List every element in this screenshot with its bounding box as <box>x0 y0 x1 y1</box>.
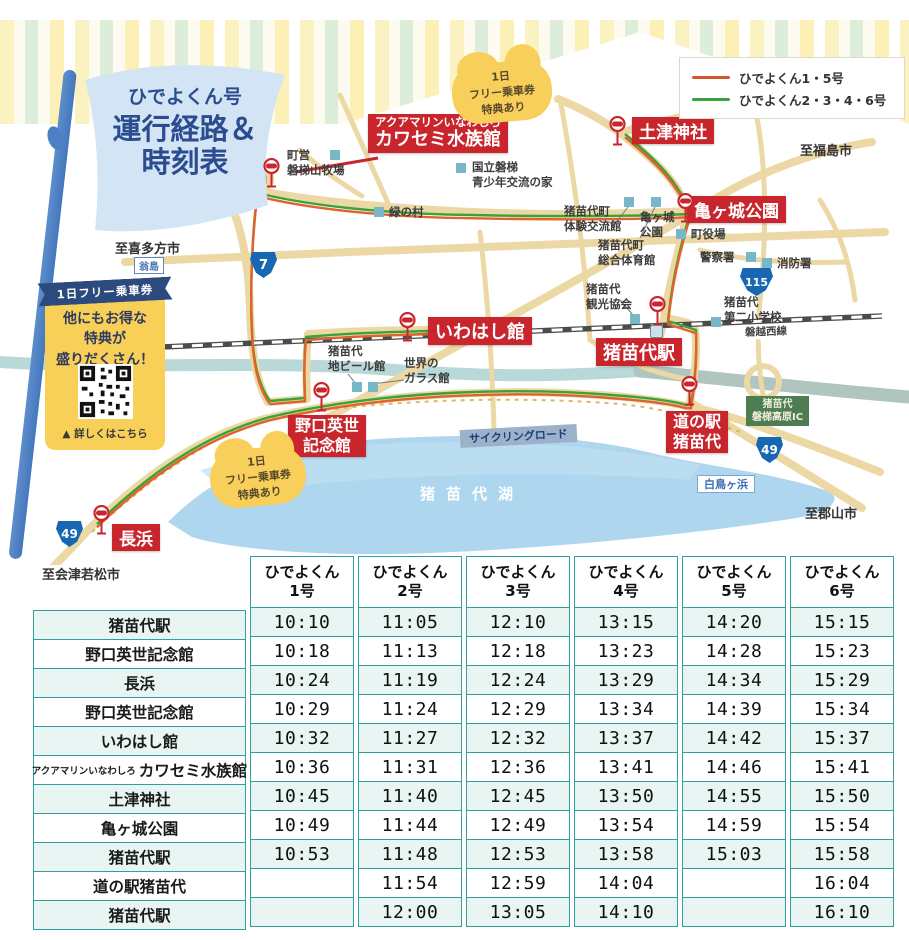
timetable-time-cell: 12:36 <box>467 752 569 781</box>
timetable-time-cell: 11:27 <box>359 723 461 752</box>
timetable-column-header: ひでよくん4号 <box>575 557 677 608</box>
direction-fukushima: 至福島市 <box>800 140 852 159</box>
timetable-column-header: ひでよくん5号 <box>683 557 785 608</box>
place-taiken-line2: 体験交流館 <box>564 219 622 234</box>
timetable-time-cell: 12:18 <box>467 636 569 665</box>
place-shogakko: 猪苗代 第二小学校 <box>724 295 782 324</box>
timetable-time-cell: 14:39 <box>683 694 785 723</box>
bus-stop-icon-hanitsu <box>608 116 627 147</box>
timetable-time-cell <box>251 897 353 926</box>
stop-label-michinoeki: 道の駅 猪苗代 <box>666 411 728 453</box>
timetable-time-cell: 11:54 <box>359 868 461 897</box>
facility-square-shobo <box>762 258 772 268</box>
timetable-time-cell: 10:10 <box>251 608 353 636</box>
place-shobo: 消防署 <box>777 256 812 271</box>
timetable-time-cell: 12:10 <box>467 608 569 636</box>
bus-stop-icon-noguchi <box>312 382 331 413</box>
timetable-time-cell: 13:34 <box>575 694 677 723</box>
title-line-1: ひでよくん号 <box>96 82 274 109</box>
qr-code <box>78 364 133 419</box>
timetable-time-cell: 11:44 <box>359 810 461 839</box>
timetable-time-cell: 10:29 <box>251 694 353 723</box>
timetable-time-cell: 11:48 <box>359 839 461 868</box>
facility-square-yakuba <box>676 229 686 239</box>
timetable-stop-name: 土津神社 <box>34 784 245 813</box>
legend-label-1-5: ひでよくん1・5号 <box>739 68 844 87</box>
legend-item-1-5: ひでよくん1・5号 <box>692 66 892 88</box>
timetable-time-cell: 14:20 <box>683 608 785 636</box>
timetable-time-cell: 10:24 <box>251 665 353 694</box>
stop-label-hanitsu-shrine: 土津神社 <box>632 117 714 144</box>
okinashima-station-label: 翁島 <box>134 257 164 274</box>
place-kokuritsu-line2: 青少年交流の家 <box>472 175 553 190</box>
facility-square-kokuritsu <box>456 163 466 173</box>
timetable-time-cell: 15:37 <box>791 723 893 752</box>
timetable-column-2: ひでよくん2号11:0511:1311:1911:2411:2711:3111:… <box>358 556 462 927</box>
stop-label-inawashiro-station: 猪苗代駅 <box>596 338 682 366</box>
timetable-time-cell: 15:54 <box>791 810 893 839</box>
timetable-stop-name: 猪苗代駅 <box>34 842 245 871</box>
timetable-time-cell: 13:41 <box>575 752 677 781</box>
timetable-stop-name: 亀ヶ城公園 <box>34 813 245 842</box>
timetable-time-cell: 13:05 <box>467 897 569 926</box>
timetable-time-cell: 13:15 <box>575 608 677 636</box>
timetable-time-cell: 11:40 <box>359 781 461 810</box>
timetable-column-header: ひでよくん1号 <box>251 557 353 608</box>
cloud-line-3: 特典あり <box>237 483 282 504</box>
legend-swatch-green <box>692 98 730 101</box>
timetable-time-cell: 15:23 <box>791 636 893 665</box>
timetable-time-cell: 11:24 <box>359 694 461 723</box>
timetable-stop-name: 長浜 <box>34 668 245 697</box>
timetable-time-cell <box>251 868 353 897</box>
timetable-column-1: ひでよくん1号10:1010:1810:2410:2910:3210:3610:… <box>250 556 354 927</box>
timetable-time-cell: 13:37 <box>575 723 677 752</box>
facility-square-midorinomura <box>374 207 384 217</box>
timetable-time-cell: 12:53 <box>467 839 569 868</box>
stop-label-noguchi-line1: 野口英世 <box>295 416 359 436</box>
title-line-2: 運行経路＆ <box>96 113 274 146</box>
timetable-time-cell: 14:46 <box>683 752 785 781</box>
stop-label-michinoeki-line2: 猪苗代 <box>673 432 721 452</box>
timetable-time-cell: 10:45 <box>251 781 353 810</box>
place-kanko-line2: 観光協会 <box>586 297 632 312</box>
timetable-time-cell: 14:04 <box>575 868 677 897</box>
place-midorinomura: 緑の村 <box>389 205 424 220</box>
timetable-time-cell: 14:10 <box>575 897 677 926</box>
timetable-time-cell: 11:19 <box>359 665 461 694</box>
timetable-time-cell: 11:05 <box>359 608 461 636</box>
timetable-column-header: ひでよくん2号 <box>359 557 461 608</box>
timetable-stop-name: 野口英世記念館 <box>34 639 245 668</box>
facility-square-kanko <box>630 314 640 324</box>
timetable-time-cell: 15:41 <box>791 752 893 781</box>
timetable-stop-name: アクアマリンいなわしろカワセミ水族館 <box>34 755 245 784</box>
place-kamegajo-small-line1: 亀ヶ城 <box>640 210 675 225</box>
timetable-time-cell: 12:45 <box>467 781 569 810</box>
promo-line-2: 特典が <box>45 329 165 349</box>
legend-swatch-orange <box>692 76 730 79</box>
promo-line-1: 他にもお得な <box>45 309 165 329</box>
place-glass-line2: ガラス館 <box>404 371 450 386</box>
stop-label-noguchi-museum: 野口英世 記念館 <box>288 415 366 457</box>
timetable-time-cell: 16:04 <box>791 868 893 897</box>
place-shogakko-line1: 猪苗代 <box>724 295 782 310</box>
legend-item-2-3-4-6: ひでよくん2・3・4・6号 <box>692 88 892 110</box>
place-glass-line1: 世界の <box>404 356 450 371</box>
timetable-column-header: ひでよくん6号 <box>791 557 893 608</box>
timetable-time-cell: 14:59 <box>683 810 785 839</box>
facility-square-shogakko <box>711 317 721 327</box>
banetsu-line-label: 磐越西線 <box>742 323 790 340</box>
timetable-column-6: ひでよくん6号15:1515:2315:2915:3415:3715:4115:… <box>790 556 894 927</box>
timetable-time-cell: 13:23 <box>575 636 677 665</box>
timetable-time-cell: 12:29 <box>467 694 569 723</box>
direction-kitakata: 至喜多方市 <box>115 238 180 257</box>
timetable-time-cell <box>683 868 785 897</box>
stop-label-nagahama: 長浜 <box>112 524 160 551</box>
timetable-time-cell: 15:58 <box>791 839 893 868</box>
place-jibeer: 猪苗代 地ビール館 <box>328 344 386 373</box>
facility-square-keisatsu <box>746 252 756 262</box>
lake-inawashiro-label: 猪苗代湖 <box>420 483 524 504</box>
place-kokuritsu-line1: 国立磐梯 <box>472 160 553 175</box>
free-pass-cloud-badge-top: 1日 フリー乗車券 特典あり <box>450 58 555 126</box>
timetable-column-header: ひでよくん3号 <box>467 557 569 608</box>
timetable-time-cell: 15:15 <box>791 608 893 636</box>
timetable-time-cell: 14:55 <box>683 781 785 810</box>
place-taiken: 猪苗代町 体験交流館 <box>564 204 622 233</box>
place-kanko-line1: 猪苗代 <box>586 282 632 297</box>
place-yakuba: 町役場 <box>691 227 726 242</box>
place-bokujo-line2: 磐梯山牧場 <box>287 163 345 178</box>
timetable-time-cell: 15:29 <box>791 665 893 694</box>
timetable-time-cell: 11:31 <box>359 752 461 781</box>
timetable-time-cell: 12:00 <box>359 897 461 926</box>
timetable-time-cell: 13:29 <box>575 665 677 694</box>
stop-label-kamegajo-park: 亀ヶ城公園 <box>687 196 786 223</box>
place-taiikukan-line1: 猪苗代町 <box>598 238 656 253</box>
facility-square-taiken <box>624 197 634 207</box>
cloud-line-3: 特典あり <box>481 98 526 118</box>
inawashiro-station-icon <box>650 325 663 338</box>
place-kanko: 猪苗代 観光協会 <box>586 282 632 311</box>
timetable-time-cell: 14:34 <box>683 665 785 694</box>
timetable-stop-name: 野口英世記念館 <box>34 697 245 726</box>
timetable-column-5: ひでよくん5号14:2014:2814:3414:3914:4214:4614:… <box>682 556 786 927</box>
place-taiikukan-line2: 総合体育館 <box>598 253 656 268</box>
ic-label-line1: 猪苗代 <box>752 398 803 411</box>
stop-label-michinoeki-line1: 道の駅 <box>673 412 721 432</box>
timetable-time-cell: 14:42 <box>683 723 785 752</box>
timetable-stop-column: 猪苗代駅野口英世記念館長浜野口英世記念館いわはし館アクアマリンいなわしろカワセミ… <box>33 610 246 930</box>
place-kamegajo-small-line2: 公園 <box>640 225 675 240</box>
timetable-time-cell: 13:58 <box>575 839 677 868</box>
timetable-column-3: ひでよくん3号12:1012:1812:2412:2912:3212:3612:… <box>466 556 570 927</box>
timetable-time-cell: 12:59 <box>467 868 569 897</box>
facility-square-glass <box>368 382 378 392</box>
direction-koriyama: 至郡山市 <box>805 503 857 522</box>
timetable-time-cell: 12:24 <box>467 665 569 694</box>
bandai-kogen-ic-label: 猪苗代 磐梯高原IC <box>746 396 809 426</box>
stop-label-iwahashi-kan: いわはし館 <box>428 317 532 345</box>
shiratori-beach-label: 白鳥ヶ浜 <box>697 475 755 493</box>
timetable-time-cell: 10:36 <box>251 752 353 781</box>
promo-text: 他にもお得な 特典が 盛りだくさん！ <box>45 309 165 370</box>
place-kokuritsu: 国立磐梯 青少年交流の家 <box>472 160 553 189</box>
timetable-time-cell: 12:32 <box>467 723 569 752</box>
timetable-stop-name: 猪苗代駅 <box>34 900 245 929</box>
timetable-stop-name: 猪苗代駅 <box>34 611 245 639</box>
timetable-time-cell: 14:28 <box>683 636 785 665</box>
bus-stop-icon-nagahama <box>92 505 111 536</box>
facility-square-bokujo <box>330 150 340 160</box>
timetable-stop-name: 道の駅猪苗代 <box>34 871 245 900</box>
timetable-time-cell: 10:32 <box>251 723 353 752</box>
free-pass-promo-card: 1日フリー乗車券 他にもお得な 特典が 盛りだくさん！ ▲ 詳しくはこちら <box>45 292 165 450</box>
place-keisatsu: 警察署 <box>700 250 735 265</box>
timetable-time-cell: 16:10 <box>791 897 893 926</box>
facility-square-taiikukan <box>651 197 661 207</box>
place-glass: 世界の ガラス館 <box>404 356 450 385</box>
promo-cta: ▲ 詳しくはこちら <box>45 426 165 441</box>
timetable-time-cell: 13:54 <box>575 810 677 839</box>
timetable-column-4: ひでよくん4号13:1513:2313:2913:3413:3713:4113:… <box>574 556 678 927</box>
timetable-time-cell: 12:49 <box>467 810 569 839</box>
timetable-time-cell: 10:53 <box>251 839 353 868</box>
timetable-stop-name: いわはし館 <box>34 726 245 755</box>
place-taiikukan: 猪苗代町 総合体育館 <box>598 238 656 267</box>
legend-label-2-3-4-6: ひでよくん2・3・4・6号 <box>739 90 886 109</box>
bus-stop-icon-michinoeki <box>680 376 699 407</box>
place-jibeer-line1: 猪苗代 <box>328 344 386 359</box>
timetable: 猪苗代駅野口英世記念館長浜野口英世記念館いわはし館アクアマリンいなわしろカワセミ… <box>33 556 894 930</box>
facility-square-jibeer <box>352 382 362 392</box>
bus-stop-icon-iwahashi <box>398 312 417 343</box>
timetable-time-cell: 15:34 <box>791 694 893 723</box>
route-legend: ひでよくん1・5号 ひでよくん2・3・4・6号 <box>679 57 905 119</box>
timetable-time-cell: 11:13 <box>359 636 461 665</box>
stop-label-noguchi-line2: 記念館 <box>295 436 359 456</box>
ic-label-line2: 磐梯高原IC <box>752 411 803 424</box>
bus-stop-icon-kamegajo <box>676 193 695 224</box>
page-title: ひでよくん号 運行経路＆ 時刻表 <box>96 82 274 180</box>
bus-stop-icon-inawashiro-station <box>648 296 667 327</box>
timetable-time-cell: 15:03 <box>683 839 785 868</box>
place-jibeer-line2: 地ビール館 <box>328 359 386 374</box>
place-taiken-line1: 猪苗代町 <box>564 204 622 219</box>
title-line-3: 時刻表 <box>96 146 274 179</box>
timetable-time-cell: 10:18 <box>251 636 353 665</box>
timetable-time-cell: 13:50 <box>575 781 677 810</box>
timetable-time-cell: 10:49 <box>251 810 353 839</box>
place-shogakko-line2: 第二小学校 <box>724 310 782 325</box>
stop-label-aquarium-large: カワセミ水族館 <box>375 129 501 152</box>
timetable-time-cell: 15:50 <box>791 781 893 810</box>
place-kamegajo-small: 亀ヶ城 公園 <box>640 210 675 239</box>
cloud-line-1: 1日 <box>491 67 511 85</box>
timetable-time-cell <box>683 897 785 926</box>
